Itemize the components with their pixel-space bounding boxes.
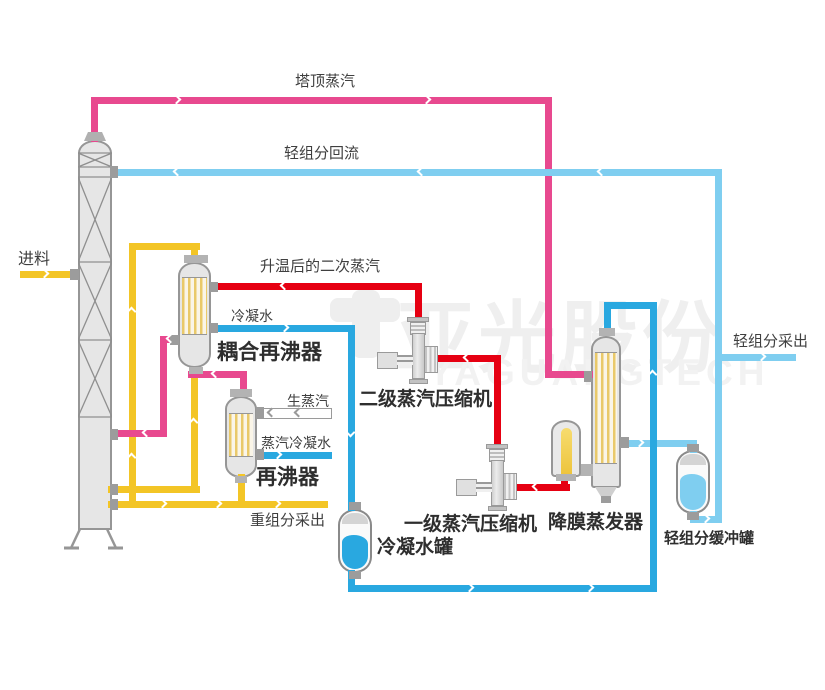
pipe-light_blue: [715, 169, 722, 523]
condensate-tank-cap: [342, 513, 368, 524]
nozzle-stub: [601, 496, 611, 503]
nozzle-stub: [70, 269, 79, 280]
flange: [235, 476, 247, 483]
column-internals: [78, 140, 112, 530]
vapor-separator-stripe: [561, 428, 572, 475]
secondary-compressor-discharge-ribs: [424, 346, 438, 373]
pipe-red: [494, 355, 501, 447]
nozzle-stub: [110, 166, 118, 178]
pipe-yellow: [108, 486, 200, 493]
nozzle-stub: [256, 407, 264, 418]
pipe-yellow: [191, 368, 198, 493]
label-coupled-reboiler: 耦合再沸器: [217, 336, 322, 366]
label-buffer-tank: 轻组分缓冲罐: [664, 527, 754, 548]
nozzle-stub: [110, 429, 118, 440]
pipe-magenta: [113, 430, 167, 437]
light-buffer-tank: [676, 450, 710, 514]
primary-compressor-discharge-ribs: [503, 473, 517, 500]
nozzle-stub: [687, 512, 699, 520]
nozzle-stub: [210, 323, 218, 333]
nozzle-stub: [687, 444, 699, 452]
pipe-yellow: [129, 243, 200, 250]
distillation-column: [78, 140, 112, 530]
coupled-reboiler-tubes: [182, 277, 207, 335]
pipe-magenta: [545, 97, 552, 378]
pipe-magenta: [91, 97, 552, 104]
flange: [556, 474, 576, 481]
buffer-tank-liquid: [680, 474, 706, 510]
label-evaporator: 降膜蒸发器: [548, 507, 643, 534]
flange: [599, 328, 615, 336]
pipe-red: [415, 283, 422, 319]
nozzle-stub: [210, 282, 218, 292]
secondary-compressor-shaft: [397, 355, 413, 365]
nozzle-stub: [110, 484, 118, 495]
condensate-tank-liquid: [342, 535, 368, 569]
nozzle-stub: [620, 437, 629, 448]
label-light-draw: 轻组分采出: [733, 330, 808, 351]
flange: [184, 255, 208, 263]
primary-compressor-shaft: [476, 482, 492, 492]
label-secondary-compressor: 二级蒸汽压缩机: [359, 384, 492, 411]
label-condensate: 冷凝水: [231, 306, 273, 326]
nozzle-stub: [584, 371, 592, 382]
flange: [189, 367, 203, 374]
falling-film-evaporator-vessel: [591, 336, 621, 488]
label-feed: 进料: [18, 245, 50, 269]
label-top-steam: 塔顶蒸汽: [295, 70, 355, 91]
coupled-reboiler-vessel: [178, 262, 211, 368]
nozzle-stub: [110, 499, 118, 510]
reboiler-tubes: [229, 413, 253, 457]
label-steam-condensate: 蒸汽冷凝水: [261, 433, 331, 453]
evaporator-tubes: [595, 352, 617, 464]
label-heated-secondary-steam: 升温后的二次蒸汽: [260, 255, 380, 276]
process-flow-diagram: 亚光股份 YAGUANGTECH: [0, 0, 825, 690]
label-heavy-draw: 重组分采出: [250, 509, 325, 530]
nozzle-stub: [349, 571, 361, 579]
condensate-tank: [338, 509, 372, 573]
pipe-yellow: [129, 246, 136, 507]
flange: [230, 389, 252, 397]
pipe-magenta: [160, 336, 167, 437]
label-reboiler: 再沸器: [256, 461, 319, 491]
nozzle-stub: [349, 502, 361, 510]
secondary-compressor-motor: [377, 352, 398, 369]
pipe-red: [217, 283, 422, 290]
pipe-dark_blue: [348, 325, 355, 511]
pipe-dark_blue: [650, 302, 657, 592]
evaporator-separator-connector: [579, 464, 593, 476]
pipe-dark_blue: [348, 585, 657, 592]
reboiler-vessel: [225, 396, 257, 478]
label-raw-steam: 生蒸汽: [287, 391, 329, 411]
label-light-reflux: 轻组分回流: [284, 142, 359, 163]
buffer-tank-cap: [680, 454, 706, 465]
primary-compressor-motor: [456, 479, 477, 496]
label-condensate-tank: 冷凝水罐: [377, 532, 453, 559]
vapor-separator: [551, 420, 581, 477]
